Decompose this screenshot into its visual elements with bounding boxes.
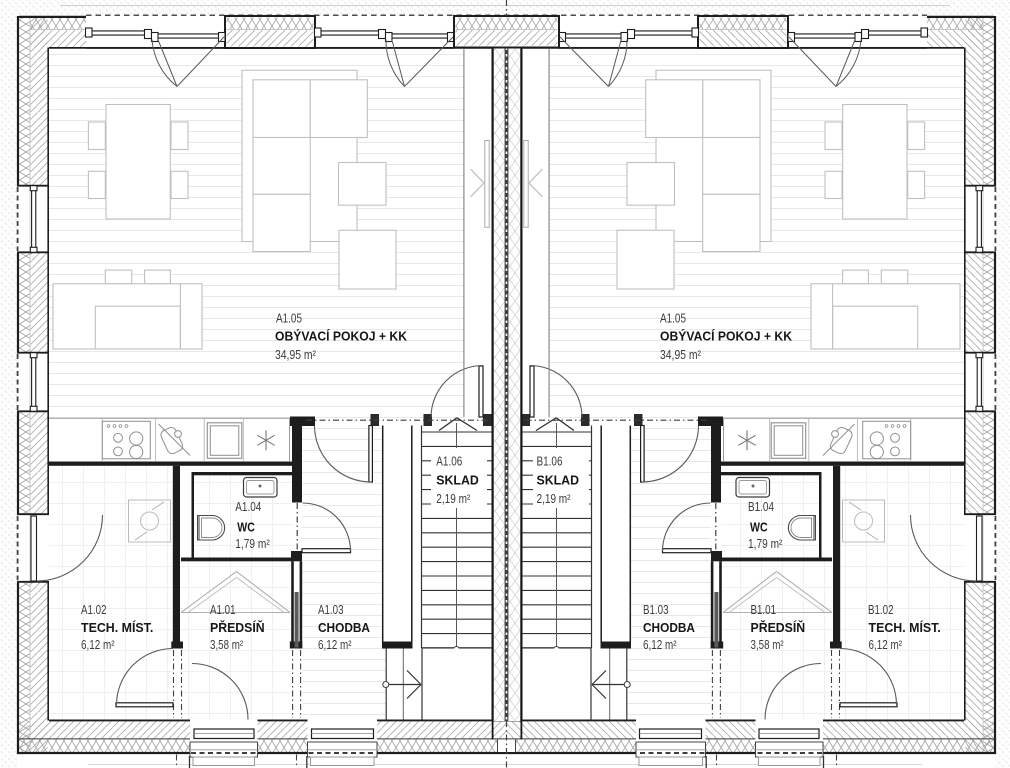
svg-text:B1.06: B1.06 xyxy=(537,454,563,469)
svg-text:SKLAD: SKLAD xyxy=(436,473,479,488)
svg-text:SKLAD: SKLAD xyxy=(537,473,580,488)
svg-text:A1.01: A1.01 xyxy=(210,602,236,617)
svg-text:6,12 m²: 6,12 m² xyxy=(81,637,115,652)
svg-text:2,19 m²: 2,19 m² xyxy=(537,491,572,506)
svg-text:3,58 m²: 3,58 m² xyxy=(751,637,785,652)
svg-text:6,12 m²: 6,12 m² xyxy=(869,637,903,652)
svg-text:1,79 m²: 1,79 m² xyxy=(235,536,270,551)
svg-text:A1.03: A1.03 xyxy=(318,602,344,617)
svg-text:3,58 m²: 3,58 m² xyxy=(210,637,244,652)
svg-text:6,12 m²: 6,12 m² xyxy=(643,637,677,652)
svg-text:TECH. MÍST.: TECH. MÍST. xyxy=(869,620,941,635)
svg-text:TECH. MÍST.: TECH. MÍST. xyxy=(81,620,153,635)
svg-text:6,12 m²: 6,12 m² xyxy=(318,637,352,652)
svg-text:1,79 m²: 1,79 m² xyxy=(748,536,783,551)
svg-text:A1.05: A1.05 xyxy=(660,311,686,326)
svg-text:A1.04: A1.04 xyxy=(235,499,261,514)
svg-text:CHODBA: CHODBA xyxy=(318,620,370,635)
svg-text:OBÝVACÍ POKOJ + KK: OBÝVACÍ POKOJ + KK xyxy=(660,328,793,343)
svg-text:WC: WC xyxy=(237,519,255,534)
svg-text:OBÝVACÍ POKOJ + KK: OBÝVACÍ POKOJ + KK xyxy=(275,328,408,343)
svg-text:B1.01: B1.01 xyxy=(751,602,777,617)
svg-text:B1.03: B1.03 xyxy=(643,602,669,617)
svg-text:34,95 m²: 34,95 m² xyxy=(275,347,317,362)
svg-text:34,95 m²: 34,95 m² xyxy=(660,347,702,362)
svg-text:PŘEDSÍŇ: PŘEDSÍŇ xyxy=(751,620,806,635)
svg-text:A1.05: A1.05 xyxy=(276,311,302,326)
svg-text:PŘEDSÍŇ: PŘEDSÍŇ xyxy=(210,620,265,635)
svg-text:B1.02: B1.02 xyxy=(868,602,894,617)
svg-text:CHODBA: CHODBA xyxy=(643,620,695,635)
svg-text:A1.02: A1.02 xyxy=(81,602,107,617)
svg-text:A1.06: A1.06 xyxy=(436,454,462,469)
svg-text:2,19 m²: 2,19 m² xyxy=(436,491,471,506)
svg-text:B1.04: B1.04 xyxy=(748,499,774,514)
svg-text:WC: WC xyxy=(750,519,768,534)
